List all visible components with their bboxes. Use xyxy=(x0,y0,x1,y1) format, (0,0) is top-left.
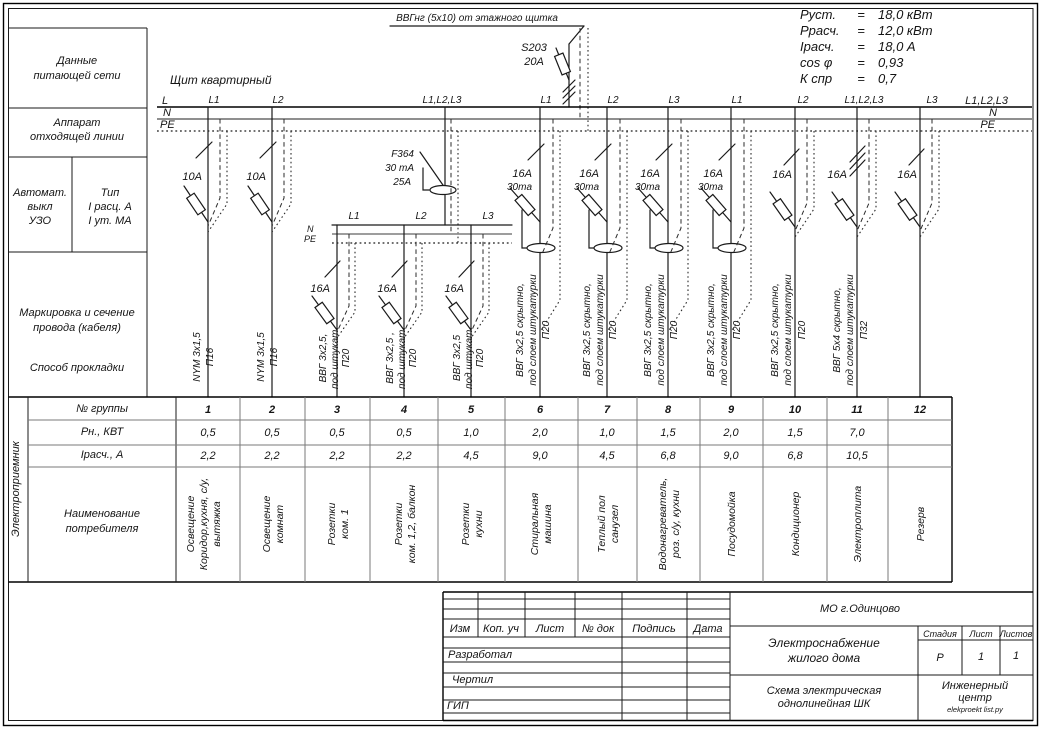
consumer-name-2: ком. 1 xyxy=(339,509,351,539)
feeder-group-12: L3 16А xyxy=(895,95,939,397)
consumer-name-2: Коридор,кухня, с/у, xyxy=(198,478,210,570)
type-row-label-3: I ут. МА xyxy=(88,215,131,227)
breaker-leakage: 30ma xyxy=(698,182,723,193)
breaker-row-label-2: выкл xyxy=(27,201,52,213)
bus-label-right-n: N xyxy=(989,107,997,119)
rating-name: К спр xyxy=(800,71,832,86)
sub-buses: N PE L1 L2 L3 xyxy=(304,211,512,244)
cable-label-2: под слоем штукатурки xyxy=(528,274,539,386)
rcd-rating: 25А xyxy=(392,177,411,188)
cable-label-2: под штукат. xyxy=(330,327,341,389)
rcd-torus-icon xyxy=(655,244,683,253)
group-number: 6 xyxy=(537,404,544,416)
outgoing-line-label-2: отходящей линии xyxy=(30,131,124,143)
breaker-icon xyxy=(251,193,270,215)
cable-label: ВВГ 3х2,5 скрытно, xyxy=(515,283,526,377)
phase-label: L1,L2,L3 xyxy=(423,95,462,106)
project-title: Электроснабжение xyxy=(768,636,880,650)
feeder-group-11: L1,L2,L3 16А ВВГ 5х4 скрытно, под слоем … xyxy=(827,95,883,397)
group-current: 2,2 xyxy=(328,450,344,462)
col-date: Дата xyxy=(691,623,722,635)
cable-label: ВВГ 3х2,5 , xyxy=(385,332,396,384)
main-breaker-symbol xyxy=(555,48,571,80)
col-doc-no: № док xyxy=(582,623,615,635)
consumer-strip-label: Электроприемник xyxy=(10,440,22,537)
stage-label: Стадия xyxy=(923,629,957,639)
group-power: 0,5 xyxy=(264,427,280,439)
phase-label: L1,L2,L3 xyxy=(845,95,884,106)
cable-label-2: под штукат. xyxy=(464,327,475,389)
outgoing-line-label: Аппарат xyxy=(53,117,101,129)
ratings-panel: Руст. = 18,0 кВт Ррасч. = 12,0 кВт Iрасч… xyxy=(800,7,933,86)
company-site: elekproekt list.py xyxy=(947,705,1004,714)
breaker-leakage: 30ma xyxy=(635,182,660,193)
consumer-name-2: машина xyxy=(542,504,554,543)
group-number: 2 xyxy=(268,404,275,416)
cable-label: NYM 3х1,5 xyxy=(192,332,203,382)
group-number: 1 xyxy=(205,404,211,416)
cable-label: ВВГ 3х2,5 скрытно, xyxy=(643,283,654,377)
group-current: 4,5 xyxy=(463,450,479,462)
cable-label-3: П20 xyxy=(408,348,419,367)
phase-label: L2 xyxy=(607,95,619,106)
feeder-group-3: 16А ВВГ 3х2,5, под штукат. П20 xyxy=(310,225,355,397)
group-power: 1,0 xyxy=(463,427,479,439)
breaker-rating: 16А xyxy=(444,283,464,295)
cable-label: ВВГ 5х4 скрытно, xyxy=(832,287,843,372)
breaker-icon xyxy=(582,195,602,216)
doc-title: Схема электрическая xyxy=(767,685,882,697)
cable-label-3: П20 xyxy=(732,320,743,339)
bus-label-n: N xyxy=(163,107,171,119)
type-row-label-2: I расц. А xyxy=(88,201,132,213)
cable-label-3: П20 xyxy=(475,348,486,367)
col-list: Лист xyxy=(535,623,564,635)
phase-label: L2 xyxy=(797,95,809,106)
stage-value: Р xyxy=(936,652,944,664)
bus-label-pe: PE xyxy=(160,119,175,131)
cable-label: NYM 3х1,5 xyxy=(256,332,267,382)
breaker-icon xyxy=(382,302,401,323)
feed-data-label: Данные xyxy=(55,55,97,67)
cable-label-3: П32 xyxy=(859,320,870,339)
consumer-name-2: ком. 1,2, балкон xyxy=(406,485,418,564)
rating-value: 12,0 кВт xyxy=(878,23,933,38)
breaker-icon xyxy=(898,199,917,221)
org-location: МО г.Одинцово xyxy=(820,603,900,615)
phase-label: L3 xyxy=(926,95,938,106)
consumer-name-2: роз. с/у, кухни xyxy=(670,490,682,559)
consumer-name-2: комнат xyxy=(274,505,286,544)
laying-method-label: Способ прокладки xyxy=(30,362,124,374)
rating-name: cos φ xyxy=(800,55,833,70)
cable-label-2: под слоем штукатурки xyxy=(595,274,606,386)
group-power: 2,0 xyxy=(531,427,548,439)
group-power: 1,5 xyxy=(787,427,803,439)
equals-sign: = xyxy=(857,23,865,38)
consumer-name: Розетки xyxy=(393,503,405,546)
group-power: 2,0 xyxy=(722,427,739,439)
group-current: 2,2 xyxy=(263,450,279,462)
cable-label: ВВГ 3х2,5 скрытно, xyxy=(706,283,717,377)
phase-label: L1 xyxy=(540,95,551,106)
cable-label-2: под слоем штукатурки xyxy=(719,274,730,386)
breaker-leakage: 30ma xyxy=(574,182,599,193)
role-drawn: Чертил xyxy=(452,674,493,686)
group-current: 2,2 xyxy=(199,450,215,462)
feeder-group-2: L2 10А NYM 3х1,5 П16 xyxy=(246,95,291,397)
group-current: 6,8 xyxy=(787,450,803,462)
feeder-group-6: L1 16А 30ma ВВГ 3х2,5 скрытно, под слоем… xyxy=(507,95,560,397)
feeder-group-1: L1 10А NYM 3х1,5 П16 xyxy=(182,95,227,397)
row-label-consumer-name: Наименование xyxy=(64,508,140,520)
rcd-leakage: 30 mA xyxy=(385,163,414,174)
breaker-row-label-3: УЗО xyxy=(28,215,52,227)
equals-sign: = xyxy=(857,55,865,70)
group-current: 2,2 xyxy=(395,450,411,462)
group-current: 9,0 xyxy=(532,450,548,462)
consumer-name: Посудомойка xyxy=(726,491,738,556)
col-izm: Изм xyxy=(450,623,471,635)
phase-label: L1 xyxy=(208,95,219,106)
group-current: 10,5 xyxy=(846,450,868,462)
sub-phase-l2: L2 xyxy=(415,211,427,222)
feeder-group-5: 16А ВВГ 3х2,5 под штукат. П20 xyxy=(444,225,489,397)
consumer-name: Стиральная xyxy=(529,492,541,555)
company-name-2: центр xyxy=(958,692,992,704)
group-number: 9 xyxy=(728,404,735,416)
panel-title: Щит квартирный xyxy=(170,73,272,87)
group-number: 12 xyxy=(914,404,926,416)
breaker-rating: 10А xyxy=(246,171,266,183)
role-gip: ГИП xyxy=(447,700,469,712)
equals-sign: = xyxy=(857,7,865,22)
consumer-name: Резерв xyxy=(915,506,927,541)
main-breaker-type: S203 xyxy=(521,42,548,54)
breaker-rating: 16А xyxy=(377,283,397,295)
breaker-row-label: Автомат. xyxy=(12,187,67,199)
cable-label-2: П16 xyxy=(269,347,280,366)
group-number: 8 xyxy=(665,404,672,416)
consumer-name-3: вытяжка xyxy=(211,501,223,547)
feeder-group-10: L2 16А ВВГ 3х2,5 скрытно, под слоем штук… xyxy=(770,95,814,397)
sheet-label: Лист xyxy=(968,629,993,639)
cable-marking-label: Маркировка и сечение xyxy=(19,307,134,319)
breaker-icon xyxy=(643,195,663,216)
row-label-group-no: № группы xyxy=(76,403,128,415)
cable-label-2: под слоем штукатурки xyxy=(783,274,794,386)
main-buses: L N PE L1,L2,L3 N PE xyxy=(157,95,1032,131)
single-line-diagram-sheet: Данные питающей сети Аппарат отходящей л… xyxy=(0,0,1041,729)
breaker-rating: 16А xyxy=(703,168,723,180)
breaker-rating: 10А xyxy=(182,171,202,183)
row-label-current: Iрасч., А xyxy=(81,449,124,461)
breaker-icon xyxy=(515,195,535,216)
cable-label-3: П20 xyxy=(541,320,552,339)
group-power: 0,5 xyxy=(396,427,412,439)
bus-label-right-phases: L1,L2,L3 xyxy=(965,95,1009,107)
group-current: 4,5 xyxy=(599,450,615,462)
breaker-icon xyxy=(706,195,726,216)
main-breaker-rating: 20А xyxy=(523,56,544,68)
cable-label-2: под штукат. xyxy=(397,327,408,389)
type-row-label: Тип xyxy=(101,187,120,199)
bus-label-right-pe: PE xyxy=(980,119,995,131)
col-signature: Подпись xyxy=(632,623,676,635)
rating-value: 0,7 xyxy=(878,71,897,86)
feeder-group-7: L2 16А 30ma ВВГ 3х2,5 скрытно, под слоем… xyxy=(574,95,627,397)
cable-label-3: П20 xyxy=(797,320,808,339)
feeder-group-4: 16А ВВГ 3х2,5 , под штукат. П20 xyxy=(377,225,422,397)
title-block: Изм Коп. уч Лист № док Подпись Дата Разр… xyxy=(443,592,1033,721)
breaker-rating: 16А xyxy=(512,168,532,180)
left-info-panel: Данные питающей сети Аппарат отходящей л… xyxy=(9,28,148,397)
sheets-value: 1 xyxy=(1013,650,1019,662)
consumer-name: Освещение xyxy=(185,495,197,552)
load-table: Электроприемник № группы Рн., КВТ Iрасч.… xyxy=(9,397,953,582)
sub-phase-l3: L3 xyxy=(482,211,494,222)
sheets-label: Листов xyxy=(999,629,1033,639)
cable-marking-label-2: провода (кабеля) xyxy=(33,322,121,334)
consumer-name-2: санузел xyxy=(609,505,621,543)
group-power: 1,5 xyxy=(660,427,676,439)
breaker-rating: 16А xyxy=(640,168,660,180)
group-number: 5 xyxy=(468,404,475,416)
sub-bus-label-n: N xyxy=(307,224,314,234)
row-label-consumer-name-2: потребителя xyxy=(66,523,139,535)
company-name: Инженерный xyxy=(942,680,1008,692)
cable-label-3: П20 xyxy=(341,348,352,367)
group-current: 9,0 xyxy=(723,450,739,462)
cable-label: ВВГ 3х2,5 скрытно, xyxy=(582,283,593,377)
phase-label: L3 xyxy=(668,95,680,106)
consumer-name: Розетки xyxy=(326,503,338,546)
rating-name: Ррасч. xyxy=(800,23,840,38)
breaker-icon xyxy=(449,302,468,323)
equals-sign: = xyxy=(857,39,865,54)
group-number: 11 xyxy=(851,404,862,416)
breaker-leakage: 30ma xyxy=(507,182,532,193)
consumer-name: Теплый пол xyxy=(596,495,608,552)
breaker-rating: 16А xyxy=(310,283,330,295)
consumer-name: Розетки xyxy=(460,503,472,546)
rcd-torus-icon xyxy=(527,244,555,253)
cable-label: ВВГ 3х2,5 xyxy=(452,335,463,381)
consumer-name: Электроплита xyxy=(852,486,864,563)
breaker-rating: 16А xyxy=(579,168,599,180)
rcd-torus-icon xyxy=(594,244,622,253)
breaker-icon xyxy=(835,199,854,221)
breaker-rating: 16А xyxy=(772,169,792,181)
feeder-group-8: L3 16А 30ma ВВГ 3х2,5 скрытно, под слоем… xyxy=(635,95,688,397)
group-current: 6,8 xyxy=(660,450,676,462)
cable-label: ВВГ 3х2,5 скрытно, xyxy=(770,283,781,377)
breaker-icon xyxy=(315,302,334,323)
breaker-rating: 16А xyxy=(827,169,847,181)
phase-label: L1 xyxy=(731,95,742,106)
breaker-rating: 16А xyxy=(897,169,917,181)
project-title-2: жилого дома xyxy=(787,651,861,665)
rating-name: Руст. xyxy=(800,7,836,22)
rcd-torus-icon xyxy=(430,186,456,195)
consumer-name-2: кухни xyxy=(473,510,485,537)
rating-value: 18,0 А xyxy=(878,39,916,54)
cable-label-2: под слоем штукатурки xyxy=(656,274,667,386)
rating-value: 0,93 xyxy=(878,55,904,70)
doc-title-2: однолинейная ШК xyxy=(778,698,871,710)
rcd-model: F364 xyxy=(391,149,414,160)
cable-label-2: П16 xyxy=(205,347,216,366)
group-number: 4 xyxy=(400,404,407,416)
cable-label: ВВГ 3х2,5, xyxy=(318,334,329,383)
sub-bus-label-pe: PE xyxy=(304,234,317,244)
cable-label-3: П20 xyxy=(608,320,619,339)
group-number: 3 xyxy=(334,404,340,416)
phase-label: L2 xyxy=(272,95,284,106)
rating-value: 18,0 кВт xyxy=(878,7,933,22)
col-kop-uch: Коп. уч xyxy=(483,623,519,635)
group-power: 1,0 xyxy=(599,427,615,439)
group-power: 0,5 xyxy=(329,427,345,439)
incoming-feed: ВВГнг (5х10) от этажного щитка S203 20А xyxy=(390,13,588,131)
cable-label-2: под слоем штукатурки xyxy=(845,274,856,386)
group-power: 7,0 xyxy=(849,427,865,439)
sheet-value: 1 xyxy=(978,651,984,663)
bus-label-l: L xyxy=(162,95,168,107)
role-developed: Разработал xyxy=(448,649,512,661)
group-power: 0,5 xyxy=(200,427,216,439)
group-number: 10 xyxy=(789,404,802,416)
consumer-name: Освещение xyxy=(261,495,273,552)
incoming-cable-label: ВВГнг (5х10) от этажного щитка xyxy=(396,13,558,24)
equals-sign: = xyxy=(857,71,865,86)
breaker-icon xyxy=(187,193,206,215)
consumer-name: Кондиционер xyxy=(790,492,802,557)
feed-data-label-2: питающей сети xyxy=(33,70,120,82)
rcd-torus-icon xyxy=(718,244,746,253)
sub-phase-l1: L1 xyxy=(348,211,359,222)
consumer-name: Водонагреватель, xyxy=(657,478,669,571)
rating-name: Iрасч. xyxy=(800,39,834,54)
cable-label-3: П20 xyxy=(669,320,680,339)
breaker-icon xyxy=(773,199,792,221)
group-number: 7 xyxy=(604,404,611,416)
row-label-power: Рн., КВТ xyxy=(81,426,125,438)
feeder-group-9: L1 16А 30ma ВВГ 3х2,5 скрытно, под слоем… xyxy=(698,95,751,397)
